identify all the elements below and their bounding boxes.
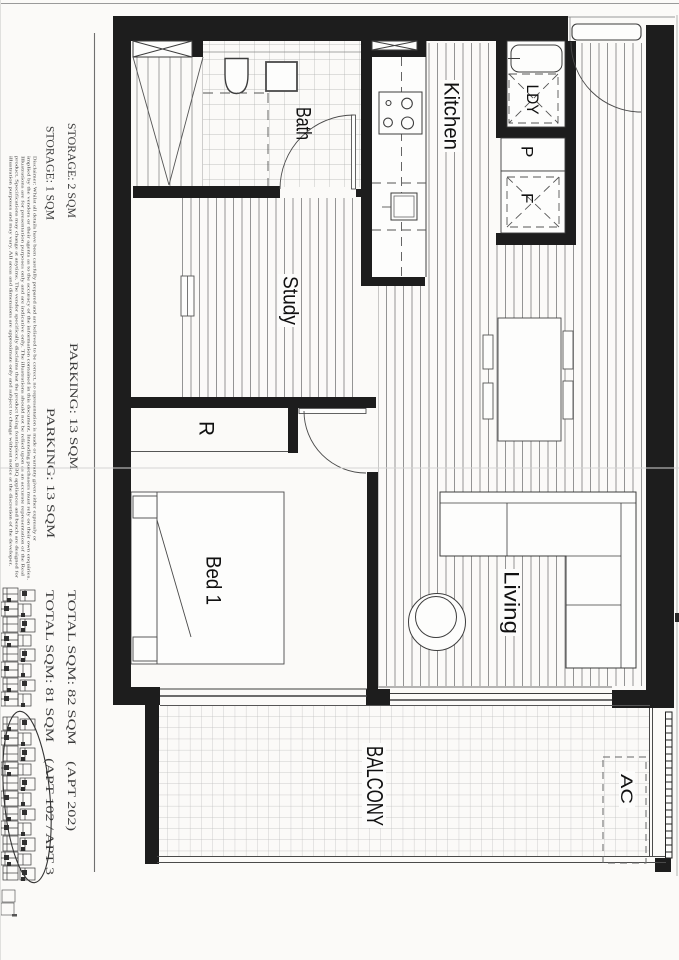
svg-text:AC: AC (617, 774, 636, 804)
svg-text:BALCONY: BALCONY (362, 746, 388, 826)
svg-text:Bed 1: Bed 1 (202, 556, 225, 605)
svg-text:Study: Study (279, 276, 302, 325)
svg-text:Bath: Bath (292, 107, 315, 140)
svg-text:Living: Living (500, 571, 523, 634)
svg-text:LDY: LDY (523, 85, 542, 115)
svg-text:PARKING: 13 SQM: PARKING: 13 SQM (67, 343, 79, 470)
svg-text:R: R (195, 421, 218, 436)
svg-text:TOTAL SQM: 82 SQM (APT 202): TOTAL SQM: 82 SQM (APT 202) (65, 590, 77, 831)
svg-text:illustration purposes and may: illustration purposes and may vary. All … (9, 156, 14, 566)
svg-text:Illustrations are for presenta: Illustrations are for presentation purpo… (21, 156, 26, 577)
svg-text:TOTAL SQM: 81 SQM (APT 102: TOTAL SQM: 81 SQM (APT 102 / APT 3 (43, 590, 55, 875)
svg-text:STORAGE: 1 SQM: STORAGE: 1 SQM (44, 126, 56, 220)
svg-text:F: F (518, 193, 537, 203)
svg-text:Kitchen: Kitchen (440, 82, 463, 150)
svg-text:P: P (518, 146, 537, 157)
svg-text:PARKING: 13 SQM: PARKING: 13 SQM (44, 408, 56, 538)
svg-text:STORAGE: 2 SQM: STORAGE: 2 SQM (65, 123, 77, 218)
svg-text:implied by the vendors or thei: implied by the vendors or their agents a… (27, 156, 32, 580)
